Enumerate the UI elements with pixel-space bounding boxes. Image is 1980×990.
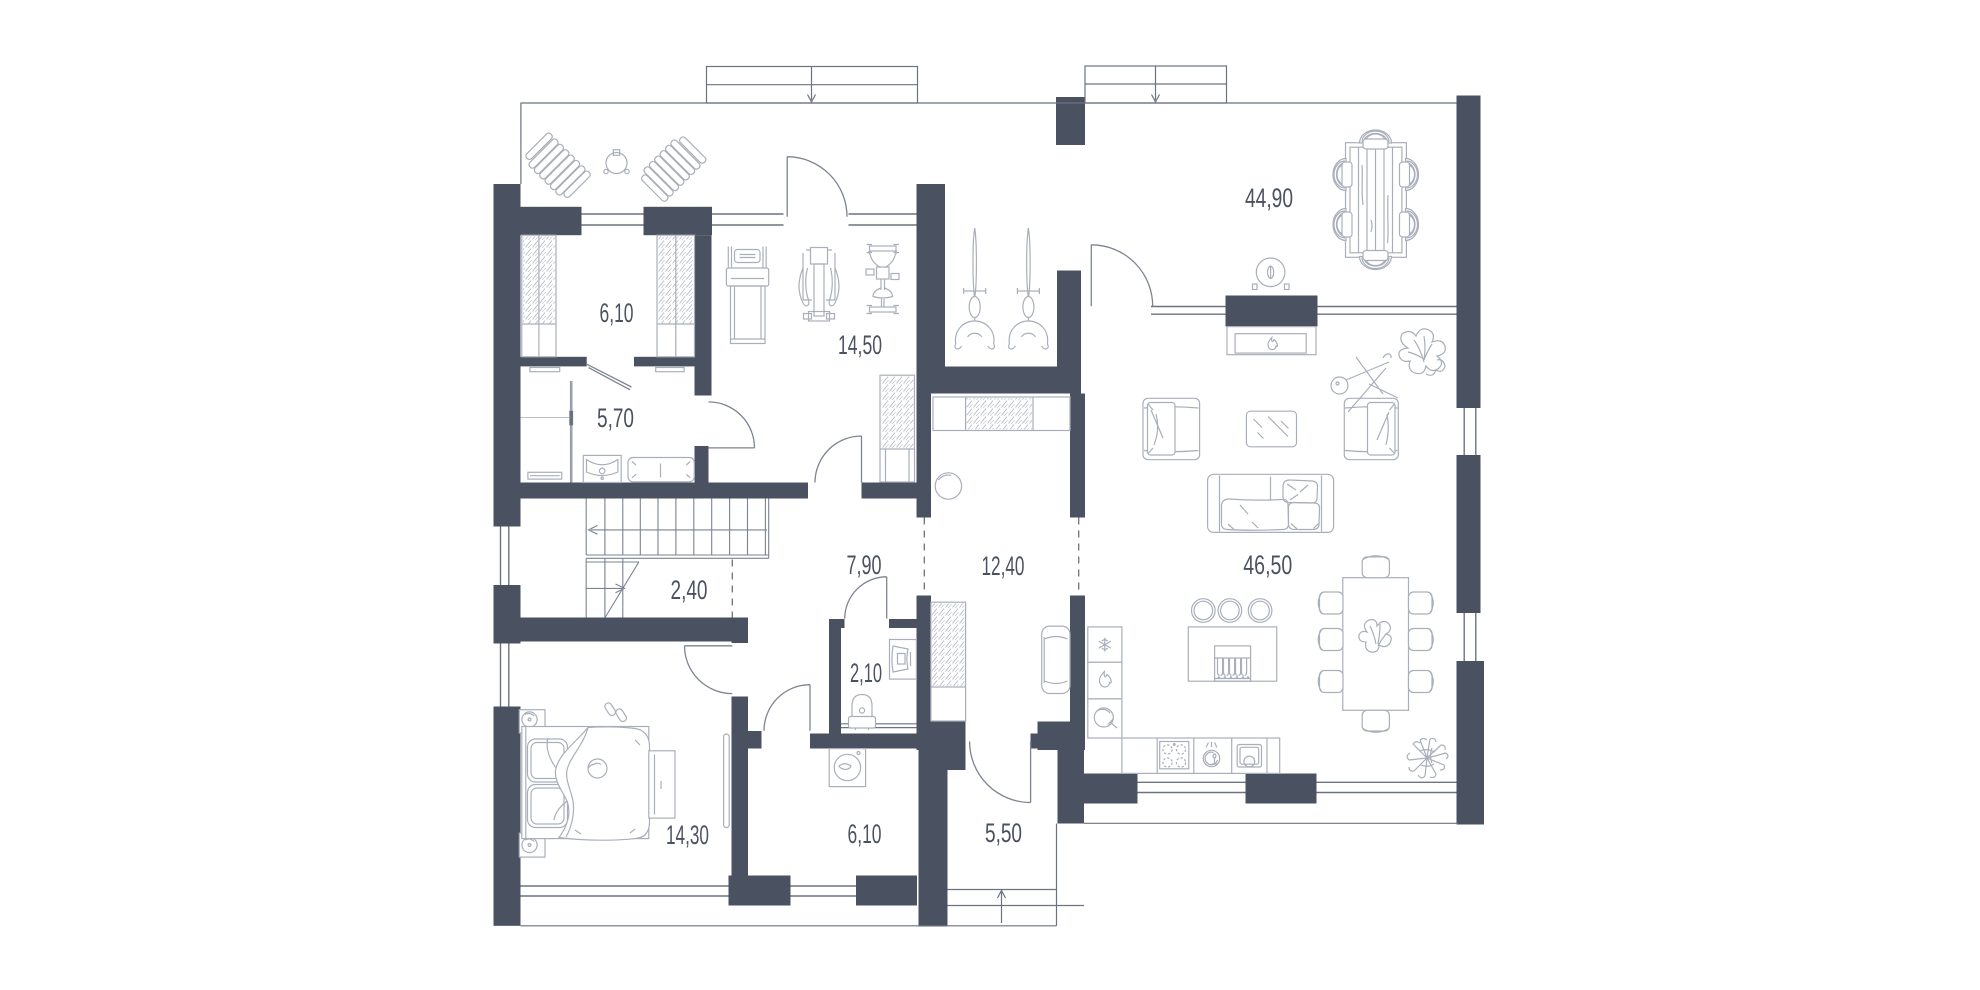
- svg-text:5,50: 5,50: [985, 818, 1022, 848]
- svg-text:12,40: 12,40: [982, 551, 1025, 581]
- svg-text:6,10: 6,10: [848, 819, 882, 849]
- svg-text:2,10: 2,10: [850, 658, 882, 688]
- svg-text:46,50: 46,50: [1243, 550, 1292, 580]
- svg-text:2,40: 2,40: [671, 575, 708, 605]
- svg-text:44,90: 44,90: [1245, 183, 1293, 213]
- svg-text:14,50: 14,50: [838, 330, 882, 360]
- svg-text:14,30: 14,30: [666, 820, 709, 850]
- svg-text:6,10: 6,10: [600, 298, 634, 328]
- svg-text:7,90: 7,90: [847, 550, 882, 580]
- svg-text:5,70: 5,70: [597, 403, 634, 433]
